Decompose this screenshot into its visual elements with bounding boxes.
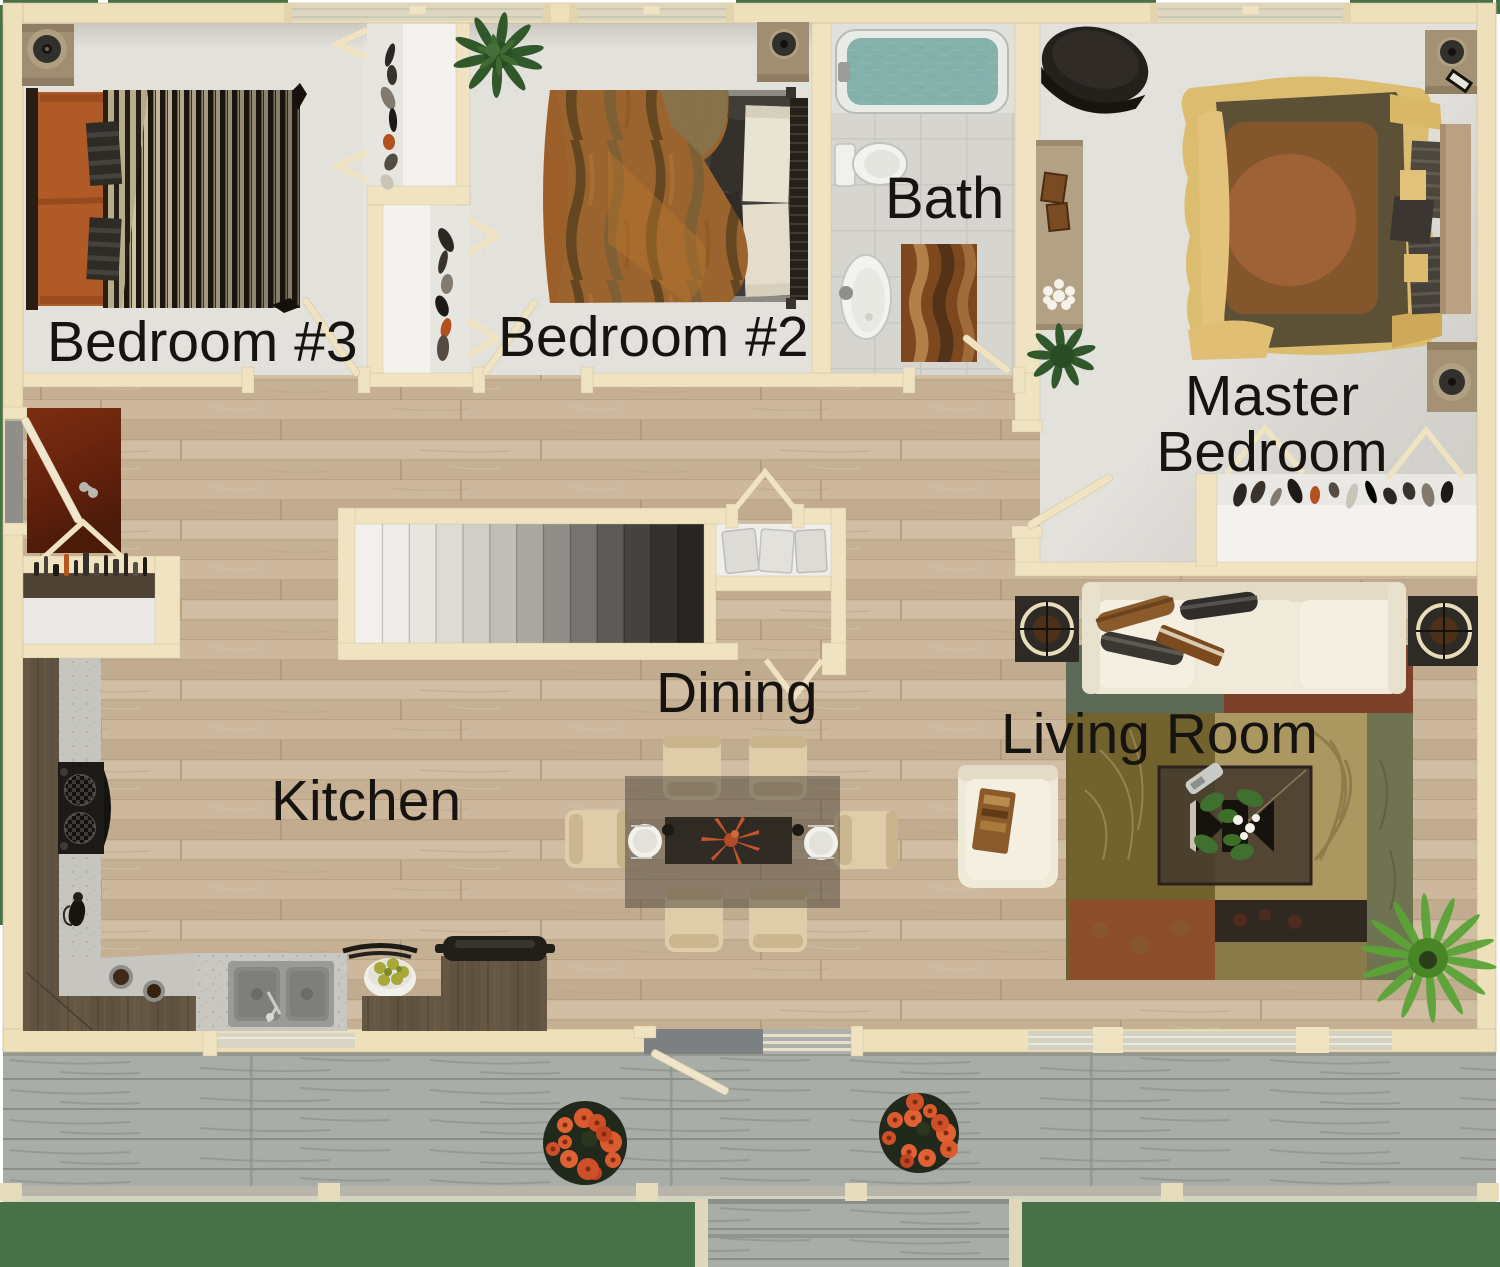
svg-text:Master: Master — [1185, 364, 1359, 428]
svg-text:Dining: Dining — [656, 661, 818, 725]
svg-text:Bedroom #3: Bedroom #3 — [47, 310, 358, 374]
svg-text:Bath: Bath — [885, 166, 1004, 231]
svg-text:Bedroom #2: Bedroom #2 — [498, 305, 809, 369]
svg-text:Bedroom: Bedroom — [1156, 420, 1387, 484]
svg-text:Living Room: Living Room — [1001, 702, 1318, 766]
svg-text:Kitchen: Kitchen — [271, 769, 461, 833]
